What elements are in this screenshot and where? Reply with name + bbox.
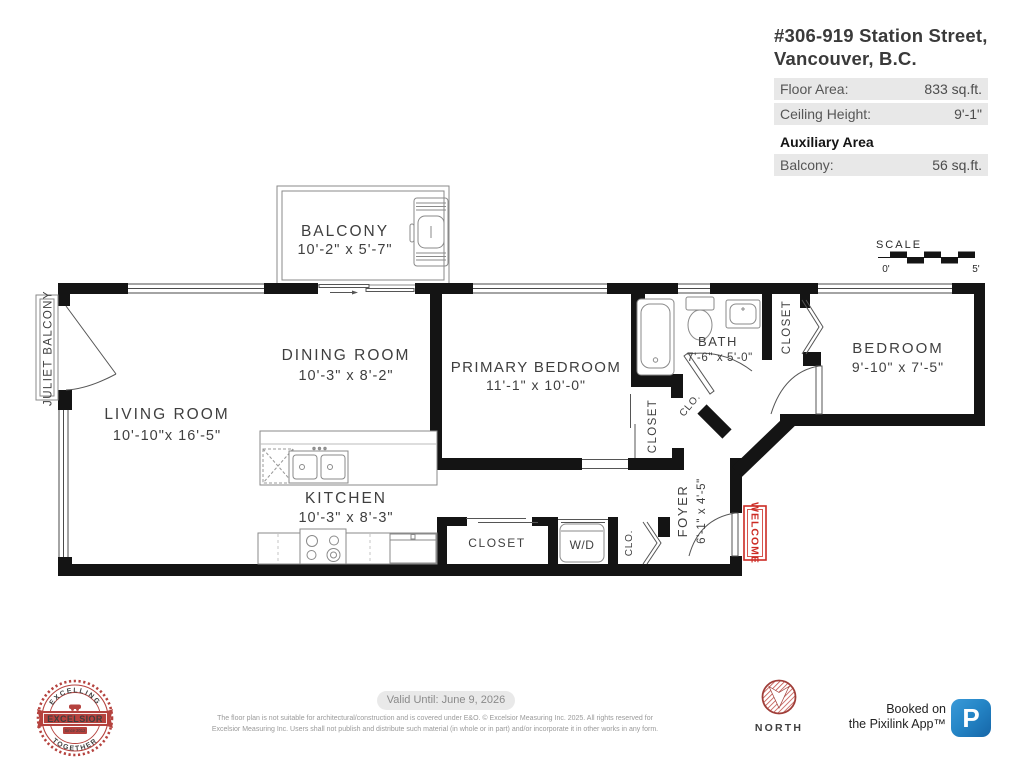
foyer-dims: 6'-1" x 4'-5" (696, 478, 708, 544)
scale-segments (890, 252, 975, 264)
booked-line2: the Pixilink App™ (790, 717, 946, 732)
welcome-mat: WELCOME (744, 502, 766, 564)
room-labels: LIVING ROOM 10'-10"x 16'-5" DINING ROOM … (104, 300, 944, 556)
bedroom-label: BEDROOM (852, 340, 944, 357)
floor-plan-drawing: BALCONY 10'-2" x 5'-7" SCALE 0' 5' (0, 0, 1024, 768)
entry-clo-label: CLO. (624, 530, 635, 557)
kitchen-label: KITCHEN (305, 490, 387, 507)
bath-dims: 7'-6" x 5'-0" (687, 352, 753, 364)
primary-bedroom-label: PRIMARY BEDROOM (451, 359, 621, 376)
bath-label: BATH (698, 334, 738, 349)
scale-title: SCALE (876, 239, 922, 251)
primary-bedroom-dims: 11'-1" x 10'-0" (486, 377, 586, 393)
primary-closet-sliding-door (631, 394, 636, 458)
window-bedroom (818, 284, 952, 294)
logo-ribbon: EXCELSIOR Since 2012 (37, 709, 113, 734)
kitchen-sink-icon (289, 447, 348, 483)
hall-closet-label: CLOSET (468, 536, 526, 550)
balcony-room-label: BALCONY (301, 223, 389, 240)
primary-bedroom-opening (582, 460, 628, 469)
bath-sink-icon (726, 300, 760, 328)
dining-room-dims: 10'-3" x 8'-2" (298, 368, 393, 384)
window-bath (678, 284, 710, 294)
balcony-room-dims: 10'-2" x 5'-7" (297, 242, 392, 258)
valid-until-badge: Valid Until: June 9, 2026 (377, 691, 515, 710)
bedroom-closet-bifold-door (802, 300, 823, 354)
hall-closet-sliding-door (466, 519, 538, 523)
balcony: BALCONY 10'-2" x 5'-7" (277, 186, 449, 285)
wd-closet-door (558, 520, 608, 523)
excelsior-logo: EXCELLING TOGETHER EXCELSIOR Since 2012 (33, 678, 117, 762)
primary-closet-label: CLOSET (647, 399, 659, 453)
foyer-label: FOYER (675, 485, 690, 538)
disclaimer-line1: The floor plan is not suitable for archi… (130, 714, 740, 725)
juliet-balcony: JULIET BALCONY (36, 290, 58, 406)
pixilink-app-icon: P (951, 699, 991, 737)
bedroom-dims: 9'-10" x 7'-5" (852, 359, 944, 375)
living-room-dims: 10'-10"x 16'-5" (113, 428, 221, 444)
scale-bar: SCALE 0' 5' (876, 239, 980, 275)
kitchen-counter (258, 529, 437, 564)
juliet-door (66, 306, 116, 390)
window-living-left (59, 410, 70, 557)
window-primary (473, 284, 607, 294)
balcony-sliding-door (319, 285, 414, 295)
wd-label: W/D (570, 538, 595, 552)
floor-plan-page: #306-919 Station Street, Vancouver, B.C.… (0, 0, 1024, 768)
logo-car-icon (69, 705, 81, 711)
logo-since-text: Since 2012 (65, 728, 87, 733)
living-room-label: LIVING ROOM (104, 406, 229, 423)
pixilink-booked-text: Booked on the Pixilink App™ (790, 702, 946, 733)
disclaimer-line2: Excelsior Measuring Inc. Users shall not… (130, 725, 740, 736)
welcome-label: WELCOME (749, 502, 761, 564)
logo-center-text: EXCELSIOR (47, 714, 103, 724)
bedroom-door (771, 366, 822, 414)
scale-five: 5' (972, 264, 980, 275)
kitchen-island (260, 431, 437, 485)
angled-walls (702, 409, 792, 472)
juliet-balcony-label: JULIET BALCONY (43, 290, 55, 406)
disclaimer: The floor plan is not suitable for archi… (130, 714, 740, 735)
stove-icon (300, 529, 346, 564)
booked-line1: Booked on (790, 702, 946, 717)
fridge-icon (390, 534, 436, 563)
window-living (128, 284, 264, 294)
kitchen-dims: 10'-3" x 8'-3" (298, 510, 393, 526)
bath-closet-label: CLOSET (781, 300, 793, 354)
bathtub-icon (637, 299, 674, 375)
scale-zero: 0' (882, 264, 890, 275)
dining-room-label: DINING ROOM (282, 347, 411, 364)
